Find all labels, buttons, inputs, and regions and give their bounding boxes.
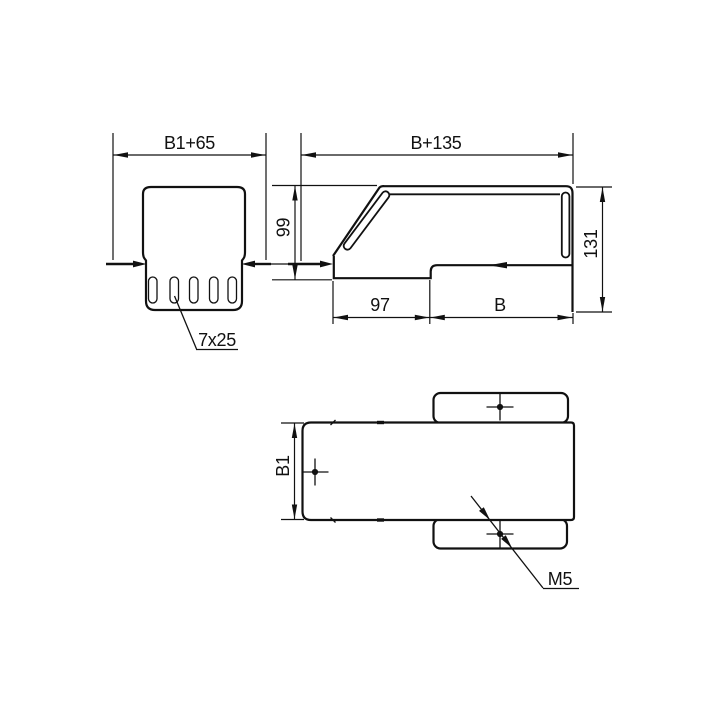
thread-label: M5	[548, 569, 573, 589]
drawing-background	[0, 0, 724, 724]
side-width-label: B+135	[410, 133, 461, 153]
front-width-label: B1+65	[164, 133, 215, 153]
right-flange-band	[562, 193, 570, 258]
slots-label: 7x25	[198, 330, 236, 350]
left-height-label: 99	[274, 218, 294, 238]
technical-drawing: B1+65 7x25	[0, 0, 724, 724]
plan-body-outline	[303, 423, 575, 521]
plan-height-label: B1	[273, 455, 293, 477]
bottom-left-label: 97	[370, 295, 390, 315]
bottom-right-label: B	[494, 295, 506, 315]
drawing-canvas: B1+65 7x25	[0, 0, 724, 724]
right-height-label: 131	[581, 229, 601, 258]
